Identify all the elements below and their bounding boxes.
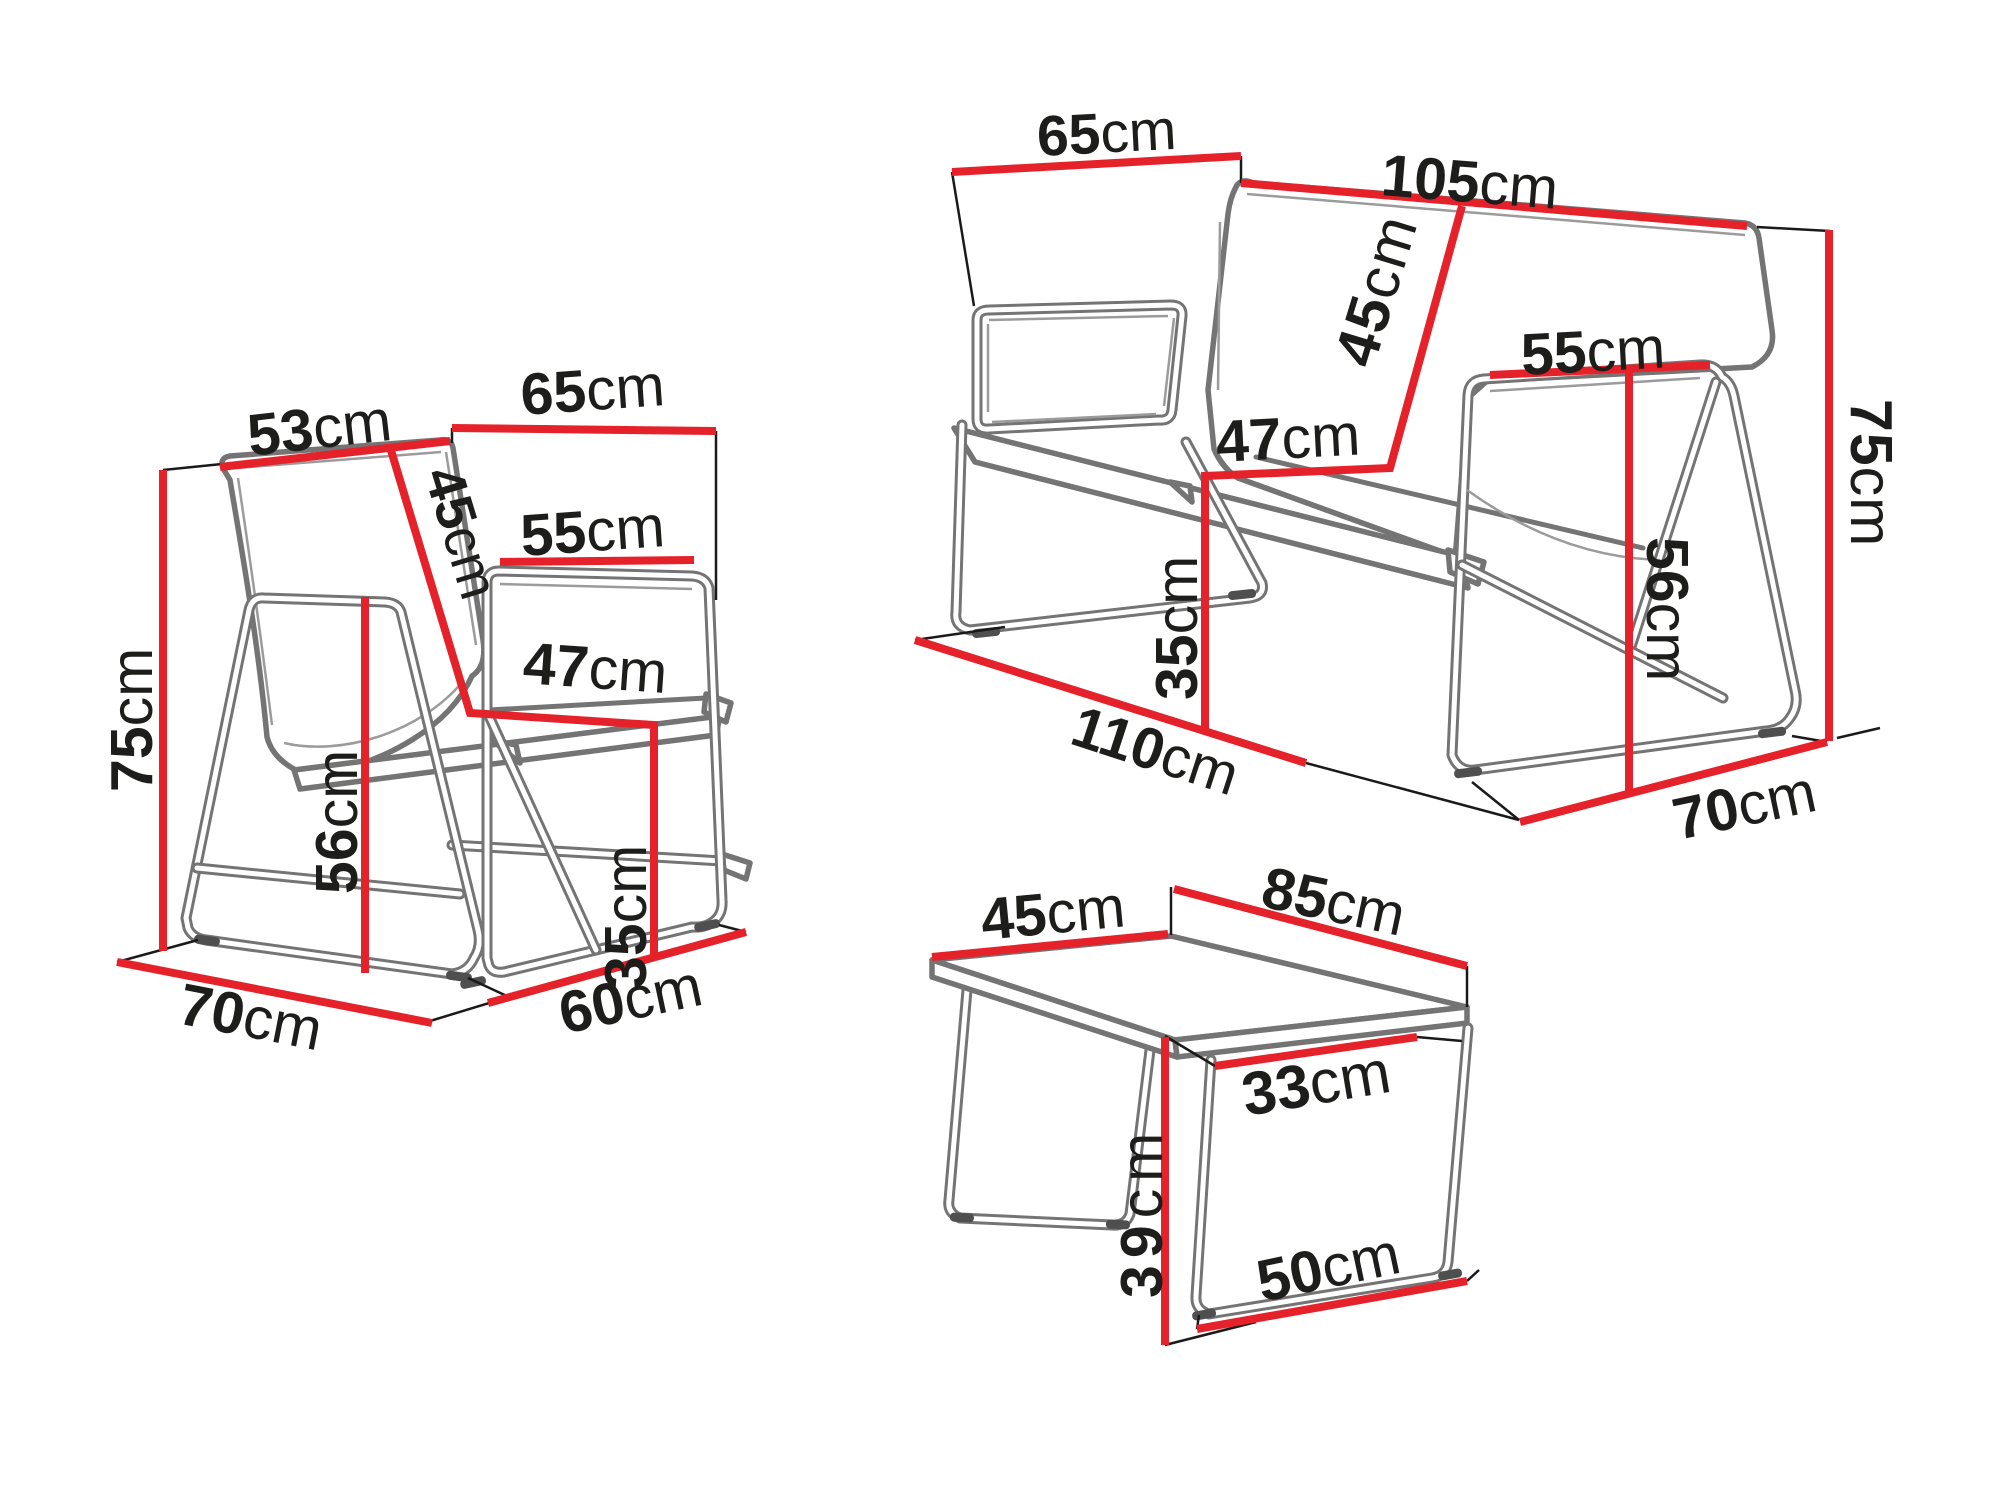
svg-text:75cm: 75cm xyxy=(1838,399,1904,547)
svg-text:45cm: 45cm xyxy=(978,873,1128,953)
svg-text:75cm: 75cm xyxy=(99,648,165,792)
svg-text:39cm: 39cm xyxy=(1109,1126,1175,1298)
svg-text:56cm: 56cm xyxy=(1634,537,1700,681)
svg-text:35cm: 35cm xyxy=(1144,556,1210,700)
svg-text:65cm: 65cm xyxy=(518,352,667,428)
svg-text:47cm: 47cm xyxy=(521,630,670,706)
svg-text:47cm: 47cm xyxy=(1214,402,1362,475)
svg-text:55cm: 55cm xyxy=(1519,315,1667,388)
svg-text:65cm: 65cm xyxy=(1035,98,1178,169)
svg-text:56cm: 56cm xyxy=(304,750,370,894)
svg-text:55cm: 55cm xyxy=(518,493,667,569)
svg-text:105cm: 105cm xyxy=(1379,142,1561,222)
